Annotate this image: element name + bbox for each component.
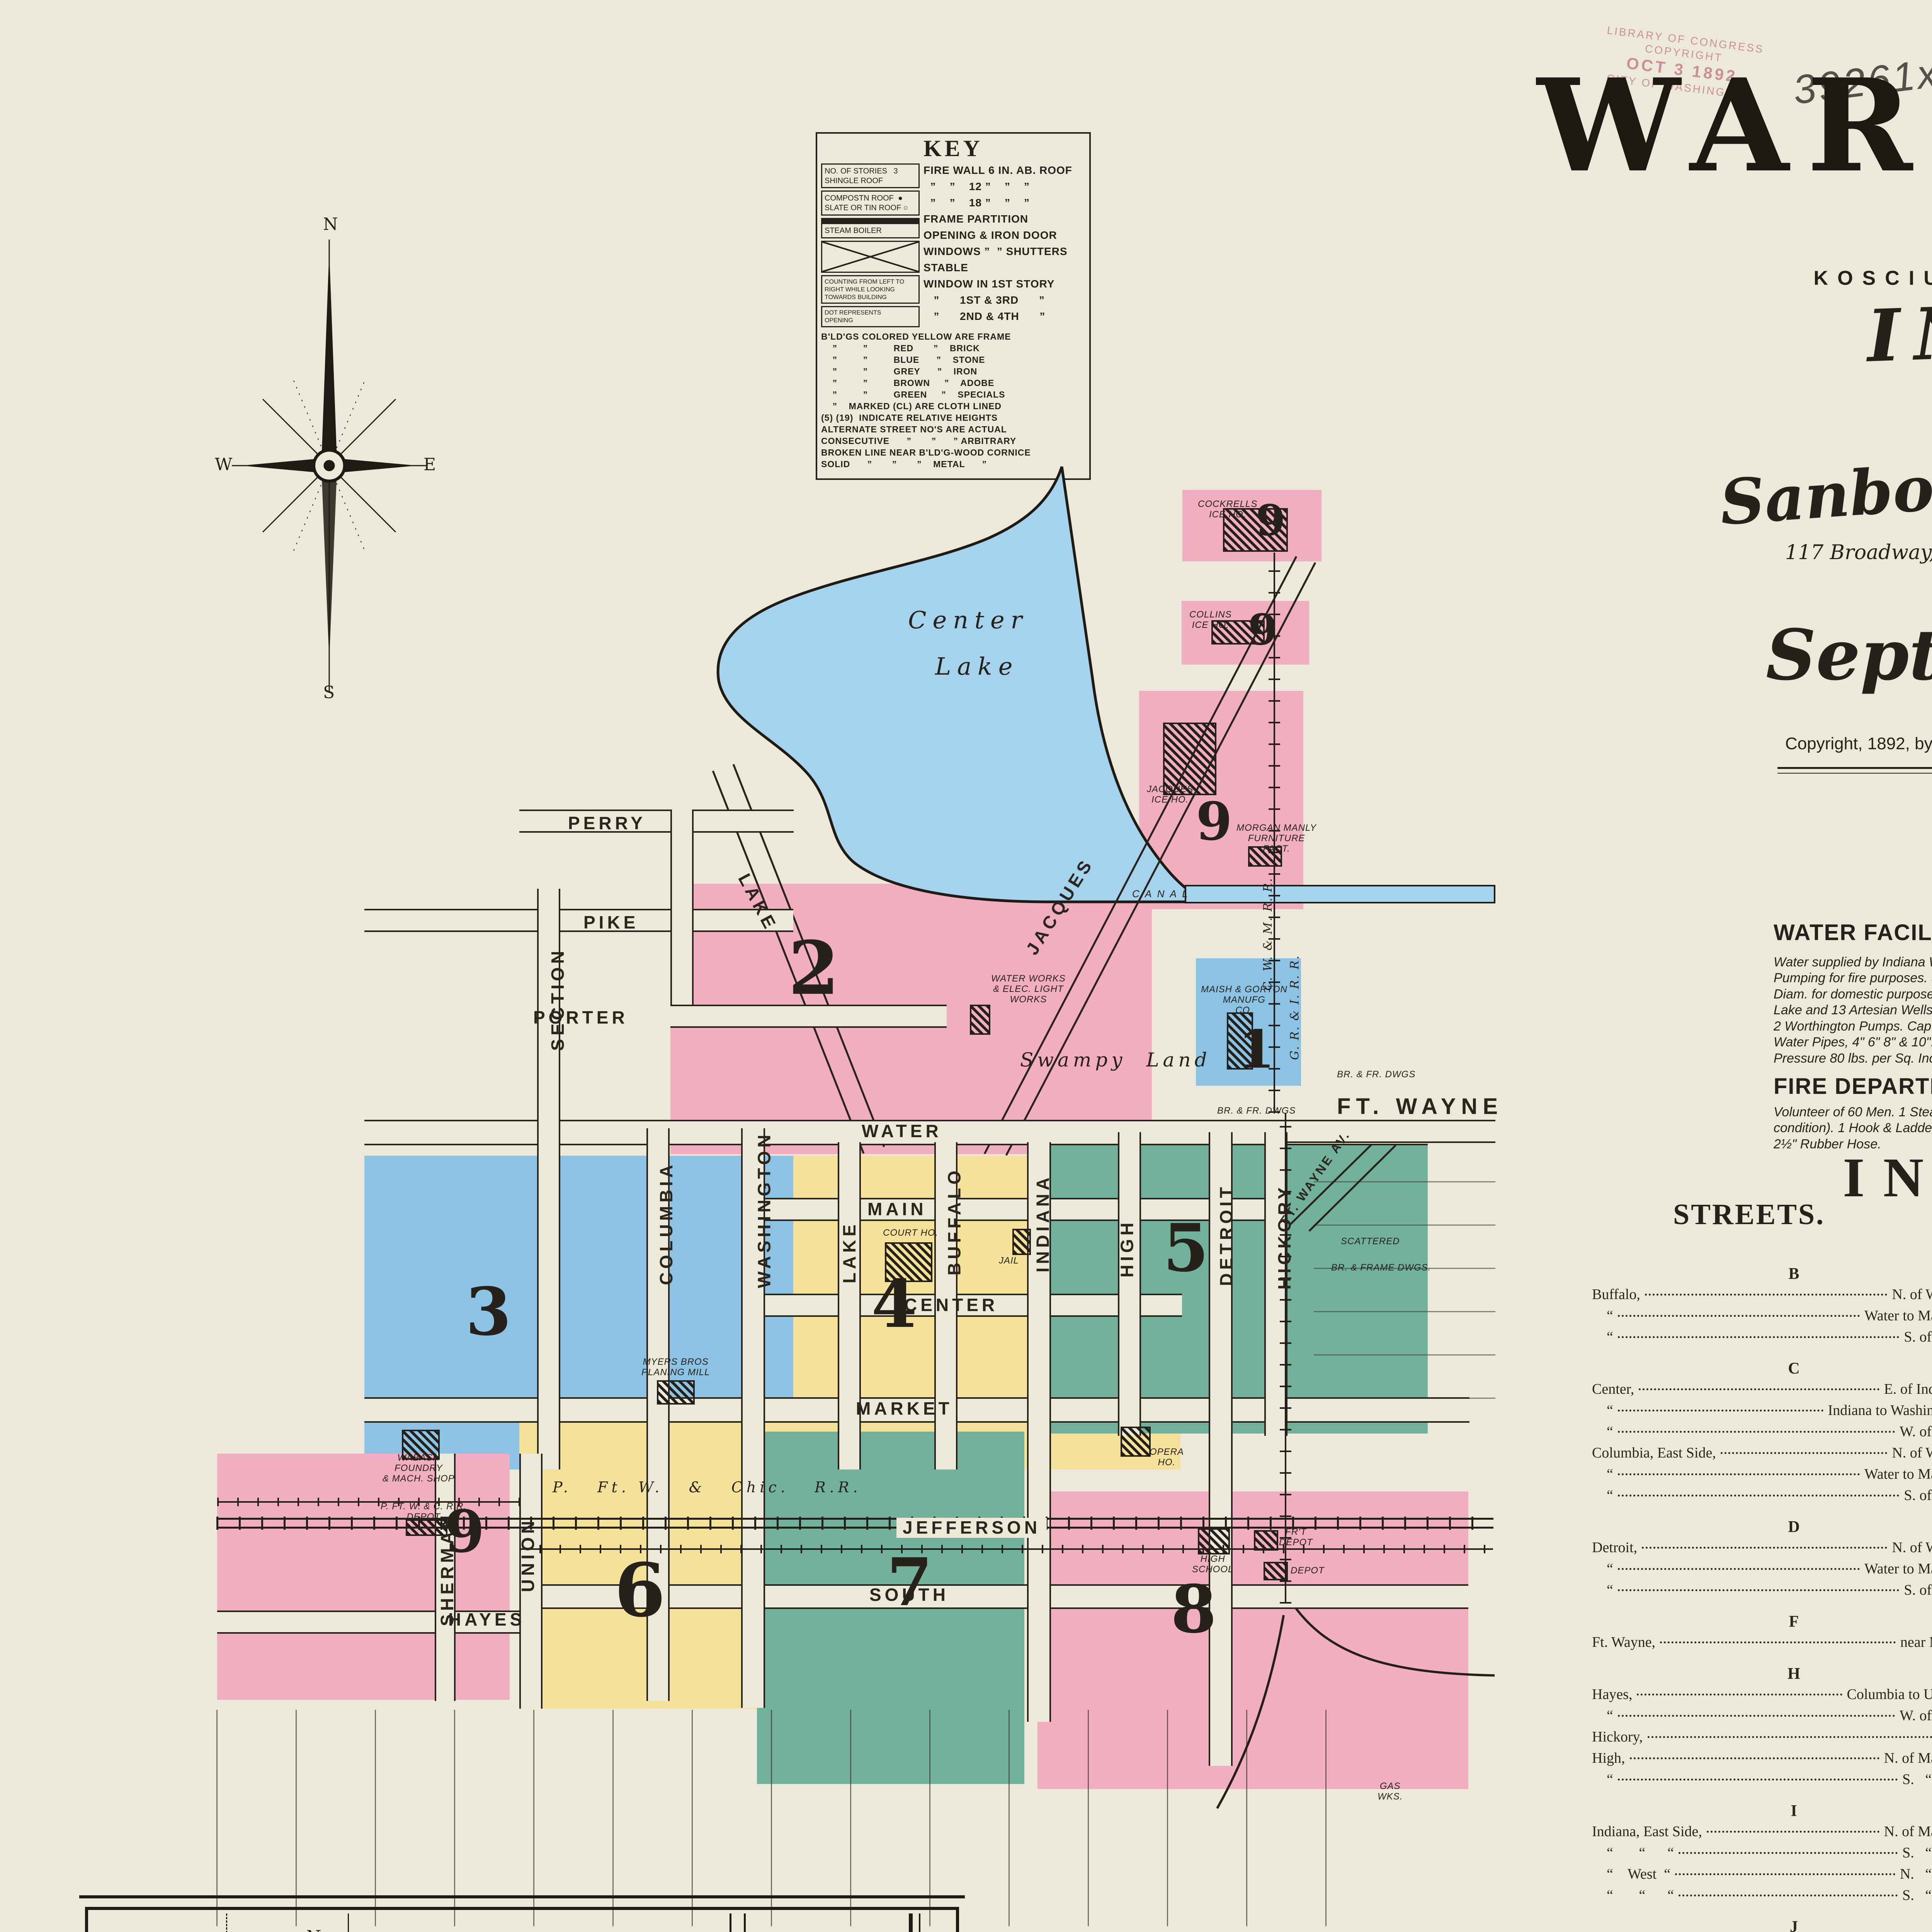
- inset-content: No e x p o s u r eN o e x p o s u r eV a…: [0, 0, 1932, 1932]
- sanborn-map-sheet: 9 Sheets. (5487) LIBRARY OF CONGRESS COP…: [0, 0, 1932, 1932]
- inset-rail-2: [744, 1913, 746, 1932]
- inset-rail-1: [730, 1913, 731, 1932]
- water-pipe-line: [226, 1913, 227, 1932]
- inset-label: No e x p o s u r e: [305, 1927, 614, 1932]
- inset-rail-heavy-2: [919, 1913, 920, 1932]
- inset-rail-heavy-1: [909, 1913, 913, 1932]
